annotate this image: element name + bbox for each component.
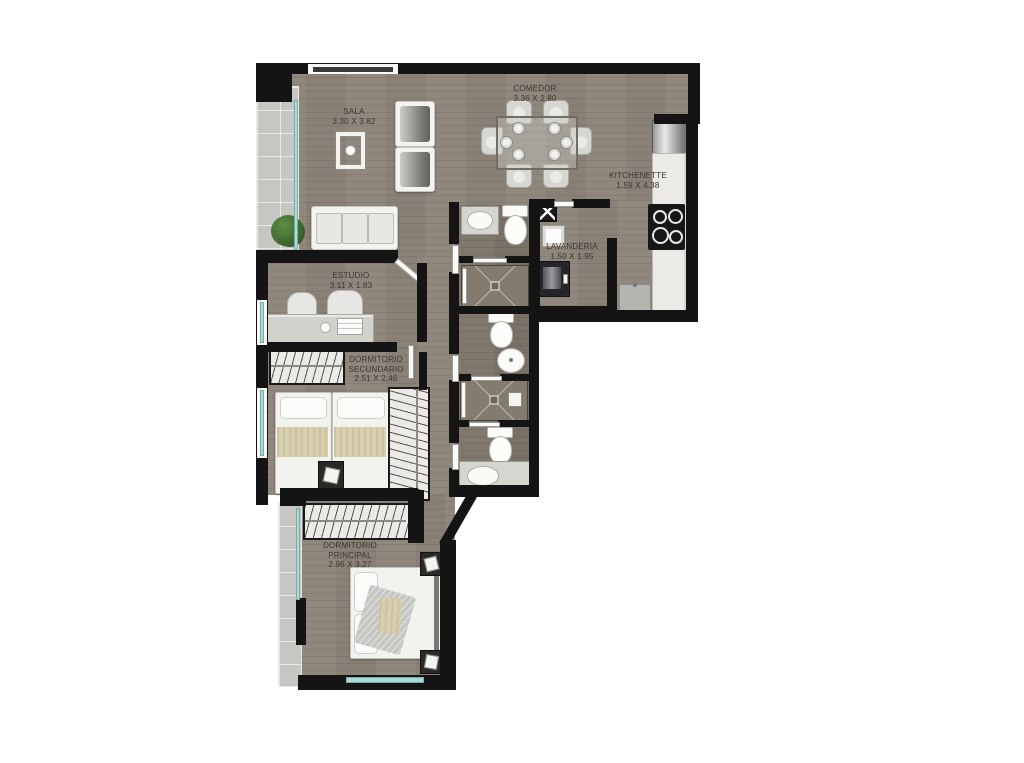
wall xyxy=(256,63,292,102)
plate xyxy=(500,136,513,149)
wall xyxy=(529,199,540,315)
window xyxy=(346,677,424,683)
sofa-cushion xyxy=(368,213,394,244)
wall xyxy=(529,314,539,497)
door-shower xyxy=(469,422,500,427)
faucet-icon xyxy=(509,358,513,362)
wall xyxy=(408,490,424,543)
wall xyxy=(256,250,268,505)
double-bed xyxy=(350,567,441,659)
faucet-icon xyxy=(633,283,637,287)
armchair xyxy=(395,147,435,192)
room-dims: 3.30 X 3.82 xyxy=(332,117,375,127)
kitchen-sink xyxy=(619,284,651,312)
sink-basin xyxy=(467,466,499,486)
room-label-estudio: ESTUDIO 3.11 X 1.83 xyxy=(330,271,373,290)
nightstand xyxy=(318,461,344,489)
vanity xyxy=(461,206,499,235)
room-name: LAVANDERIA xyxy=(546,242,598,252)
blanket xyxy=(277,427,328,457)
headboard xyxy=(434,569,439,656)
shower-door xyxy=(462,268,467,304)
tv-stand xyxy=(336,132,365,169)
shower-handle xyxy=(508,392,522,407)
room-dims: 3.11 X 1.83 xyxy=(330,281,373,291)
door-dormitorio-secundario xyxy=(408,345,414,379)
wall xyxy=(498,420,529,427)
room-label-comedor: COMEDOR 3.36 X 2.80 xyxy=(513,84,556,103)
accent-pillow xyxy=(378,597,402,633)
washer-door xyxy=(543,267,561,289)
room-label-dormitorio-principal: DORMITORIO PRINCIPAL 2.96 X 3.27 xyxy=(323,541,377,570)
closet-rod xyxy=(271,365,343,367)
burner-icon xyxy=(652,227,669,244)
window-glass xyxy=(260,302,264,343)
room-name: PRINCIPAL xyxy=(323,551,377,561)
wall xyxy=(459,420,469,427)
wall xyxy=(505,256,529,263)
drain-icon xyxy=(490,396,499,405)
wall xyxy=(530,306,617,322)
stove xyxy=(648,204,685,250)
floor-plan: SALA 3.30 X 3.82 COMEDOR 3.36 X 2.80 KIT… xyxy=(0,0,1024,763)
blanket xyxy=(334,427,386,457)
room-name: DORMITORIO xyxy=(323,541,377,551)
wall xyxy=(500,374,529,381)
armchair-cushion xyxy=(400,106,430,142)
wall xyxy=(417,263,427,342)
burner-icon xyxy=(668,209,683,224)
shower-door xyxy=(461,382,466,418)
shower xyxy=(461,265,529,307)
bidet xyxy=(497,348,525,373)
wall xyxy=(280,488,306,506)
room-label-lavanderia: LAVANDERIA 1.50 X 1.95 xyxy=(546,242,598,261)
room-dims: 2.96 X 3.27 xyxy=(323,560,377,570)
burner-icon xyxy=(653,210,667,224)
wall xyxy=(686,117,698,322)
wall xyxy=(449,272,459,354)
closet-rod xyxy=(305,520,406,522)
toilet xyxy=(490,321,513,348)
wall xyxy=(607,310,698,322)
door-bathroom xyxy=(452,355,459,382)
wall xyxy=(459,374,471,381)
door-bathroom xyxy=(452,245,459,274)
room-dims: 2.51 X 2.46 xyxy=(348,374,403,384)
wall xyxy=(268,342,397,352)
wall xyxy=(572,199,610,208)
window-glass xyxy=(260,390,264,456)
toilet xyxy=(504,215,527,245)
floor-living-top xyxy=(266,70,694,120)
wall xyxy=(607,238,617,316)
room-dims: 3.36 X 2.80 xyxy=(513,94,556,104)
drain-icon xyxy=(491,282,500,291)
room-name: SALA xyxy=(332,107,375,117)
fridge xyxy=(652,120,688,155)
door-lavanderia xyxy=(554,201,574,207)
room-name: DORMITORIO xyxy=(348,355,403,365)
nightstand-item xyxy=(424,654,439,670)
wall xyxy=(440,540,456,688)
nightstand-item xyxy=(423,556,439,573)
room-label-sala: SALA 3.30 X 3.82 xyxy=(332,107,375,126)
washer-knob xyxy=(563,274,568,284)
burner-icon xyxy=(669,230,683,244)
desk-item xyxy=(320,322,331,333)
pillow xyxy=(280,397,327,419)
plant xyxy=(273,215,303,245)
tv-dot xyxy=(345,145,356,156)
wall xyxy=(459,306,529,314)
room-dims: 1.59 X 4.38 xyxy=(609,181,667,191)
wall xyxy=(419,352,427,390)
door-bathroom xyxy=(452,444,459,470)
pillow xyxy=(337,397,385,419)
armchair xyxy=(395,101,435,147)
plate xyxy=(548,122,561,135)
room-dims: 1.50 X 1.95 xyxy=(546,252,598,262)
plate xyxy=(548,148,561,161)
room-name: COMEDOR xyxy=(513,84,556,94)
wall xyxy=(449,380,459,443)
washing-machine xyxy=(539,261,570,297)
closet xyxy=(269,347,345,385)
window-frame xyxy=(313,67,393,72)
closet-rod xyxy=(416,389,418,495)
wall xyxy=(459,256,473,263)
closet xyxy=(303,503,412,540)
nightstand-item xyxy=(323,467,341,485)
plate xyxy=(560,136,573,149)
door-shower xyxy=(471,376,502,381)
plate xyxy=(512,122,525,135)
sofa xyxy=(311,206,398,250)
room-label-kitchenette: KITCHENETTE 1.59 X 4.38 xyxy=(609,171,667,190)
sofa-cushion xyxy=(342,213,368,244)
wall xyxy=(268,250,398,263)
wall xyxy=(449,202,459,244)
sofa-cushion xyxy=(316,213,342,244)
wall xyxy=(296,598,306,645)
window-glass xyxy=(296,508,300,600)
door-shower xyxy=(473,258,507,263)
room-name: KITCHENETTE xyxy=(609,171,667,181)
room-name: ESTUDIO xyxy=(330,271,373,281)
room-label-dormitorio-secundario: DORMITORIO SECUNDARIO 2.51 X 2.46 xyxy=(348,355,403,384)
window-glass xyxy=(294,100,298,250)
wall xyxy=(449,485,539,497)
room-name: SECUNDARIO xyxy=(348,365,403,375)
laptop xyxy=(337,318,363,335)
sink-basin xyxy=(467,211,493,230)
armchair-cushion xyxy=(400,152,430,187)
toilet xyxy=(489,436,512,464)
plate xyxy=(512,148,525,161)
wardrobe xyxy=(388,387,430,501)
